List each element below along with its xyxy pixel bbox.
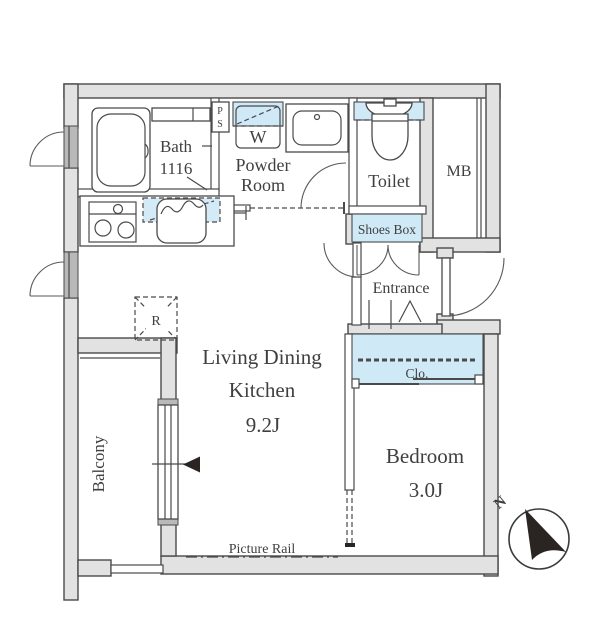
bedroom-name: Bedroom xyxy=(386,444,464,468)
bedroom-size: 3.0J xyxy=(409,478,443,502)
pipe-space: P S xyxy=(212,102,229,132)
powder-room-line1: Powder xyxy=(236,155,291,175)
vanity-sink-icon xyxy=(286,104,348,152)
floor-plan: Bath 1116 P S W Powder Room xyxy=(0,0,605,640)
bath-size: 1116 xyxy=(160,159,193,178)
toilet-room: Toilet xyxy=(354,99,424,191)
entrance-label: Entrance xyxy=(373,280,430,297)
ldk-line1: Living Dining xyxy=(202,345,322,369)
meter-box: MB xyxy=(447,98,481,238)
toilet-icon xyxy=(366,99,412,160)
refrigerator-label: R xyxy=(151,314,161,329)
washing-machine-icon: W xyxy=(233,102,283,148)
kitchen-counter xyxy=(80,196,246,246)
powder-room-label: Powder Room xyxy=(236,155,291,195)
powder-room-door-arc xyxy=(301,163,346,208)
washing-machine-label: W xyxy=(250,127,267,147)
picture-rail-label: Picture Rail xyxy=(229,542,296,557)
bath-counter-icon xyxy=(152,108,210,121)
bathtub-icon xyxy=(92,108,150,192)
powder-room-line2: Room xyxy=(241,175,285,195)
bath-name: Bath xyxy=(160,137,193,156)
refrigerator-space: R xyxy=(135,297,177,340)
balcony-label: Balcony xyxy=(89,435,108,492)
ldk-label: Living Dining Kitchen 9.2J xyxy=(202,345,322,437)
pipe-space-label-s: S xyxy=(217,119,223,130)
bath-label: Bath 1116 xyxy=(160,137,212,190)
casement-window-lower xyxy=(30,252,78,298)
ldk-line2: Kitchen xyxy=(229,378,296,402)
compass: N xyxy=(491,493,569,569)
bedroom-sliding-opening xyxy=(347,490,352,543)
closet: Clo. xyxy=(352,334,483,388)
pipe-space-label-p: P xyxy=(217,106,223,117)
toilet-label: Toilet xyxy=(368,171,410,191)
shoes-box-label: Shoes Box xyxy=(358,222,416,237)
balcony: Balcony xyxy=(89,435,108,492)
entrance: Entrance xyxy=(324,243,429,329)
entry-arrow-icon xyxy=(183,457,200,473)
picture-rail: Picture Rail xyxy=(186,542,338,557)
bedroom-label: Bedroom 3.0J xyxy=(386,444,464,502)
casement-window-upper xyxy=(30,126,78,168)
powder-room-opening xyxy=(219,202,344,214)
floorplan-page: Bath 1116 P S W Powder Room xyxy=(0,0,605,640)
entrance-door xyxy=(442,258,504,316)
ldk-size: 9.2J xyxy=(246,413,280,437)
balcony-sliding-window xyxy=(152,399,200,525)
meter-box-label: MB xyxy=(447,163,472,180)
shoes-box: Shoes Box xyxy=(352,214,422,275)
